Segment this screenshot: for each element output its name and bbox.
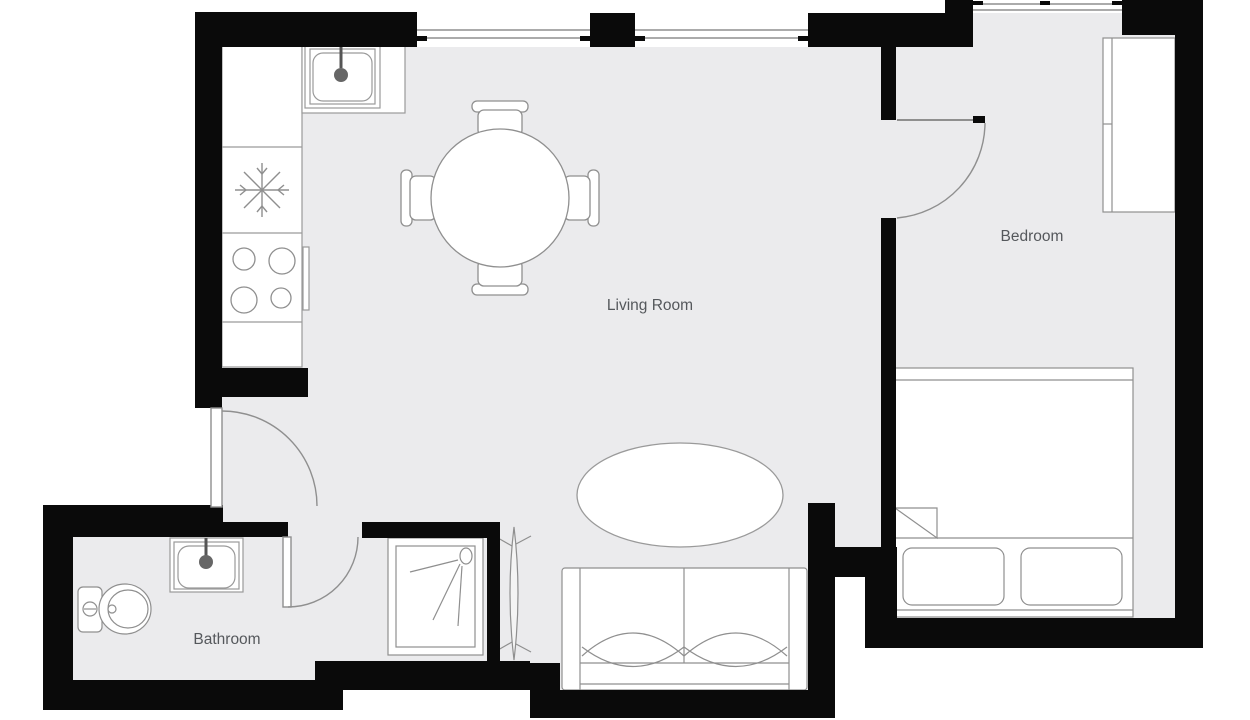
wall-divider [881, 218, 896, 547]
wall-shower-top [362, 522, 500, 538]
wall-bathroom-top-right [223, 522, 288, 537]
faucet-icon [199, 555, 213, 569]
bathroom-sink [170, 538, 243, 592]
shower-drain [460, 548, 472, 564]
sofa [562, 568, 807, 690]
wall-kitchen-left [195, 12, 222, 408]
burner [271, 288, 291, 308]
rug [577, 443, 783, 547]
window-jamb-tick [1040, 1, 1050, 5]
wall-divider-lower [865, 577, 897, 648]
kitchen-sink [305, 45, 380, 108]
room-label-bedroom: Bedroom [1001, 228, 1064, 245]
window-bedroom [973, 0, 1122, 13]
window-jamb-tick [580, 36, 590, 41]
wall-living-se [808, 503, 835, 718]
wall-top-riser [945, 0, 973, 47]
window-jamb-tick [973, 1, 983, 5]
shower [388, 538, 483, 655]
wall-window-pier [590, 13, 635, 47]
wall-bathroom-bottom [43, 680, 343, 710]
floor-plan-canvas: Living Room Bedroom Bathroom [0, 0, 1250, 720]
window-jamb-tick [635, 36, 645, 41]
room-label-living-room: Living Room [607, 297, 693, 314]
wall-bottom-living [530, 690, 835, 718]
pillow [903, 548, 1004, 605]
window-living-1 [417, 13, 590, 47]
toilet [78, 584, 151, 634]
wall-shower-bottom [315, 661, 530, 690]
window-living-2 [635, 13, 808, 47]
window-jamb-tick [1112, 1, 1122, 5]
burner [233, 248, 255, 270]
wall-bathroom-top-left [43, 505, 223, 537]
wall-bottom-step [530, 663, 560, 718]
pillow [1021, 548, 1122, 605]
window-jamb-tick [417, 36, 427, 41]
door-leaf [211, 408, 222, 507]
wall-right [1175, 0, 1203, 648]
faucet-icon [334, 68, 348, 82]
dining-table [431, 129, 569, 267]
wall-divider-stub [881, 47, 896, 120]
wall-top-kitchen [195, 12, 417, 47]
window-jamb-tick [798, 36, 808, 41]
floor-plan: Living Room Bedroom Bathroom [0, 0, 1250, 720]
wardrobe-body [1103, 38, 1175, 212]
wall-bedroom-bottom [865, 618, 1203, 648]
oven-handle [303, 247, 309, 310]
door-jamb-tick [973, 116, 985, 123]
room-label-bathroom: Bathroom [193, 631, 260, 648]
wall-kitchen-bottom [195, 368, 308, 397]
wall-divider-arm [835, 547, 897, 577]
burner [231, 287, 257, 313]
bed [895, 368, 1133, 617]
wardrobe [1103, 38, 1175, 212]
toilet-drain [108, 605, 116, 613]
burner [269, 248, 295, 274]
door-leaf [283, 537, 291, 607]
